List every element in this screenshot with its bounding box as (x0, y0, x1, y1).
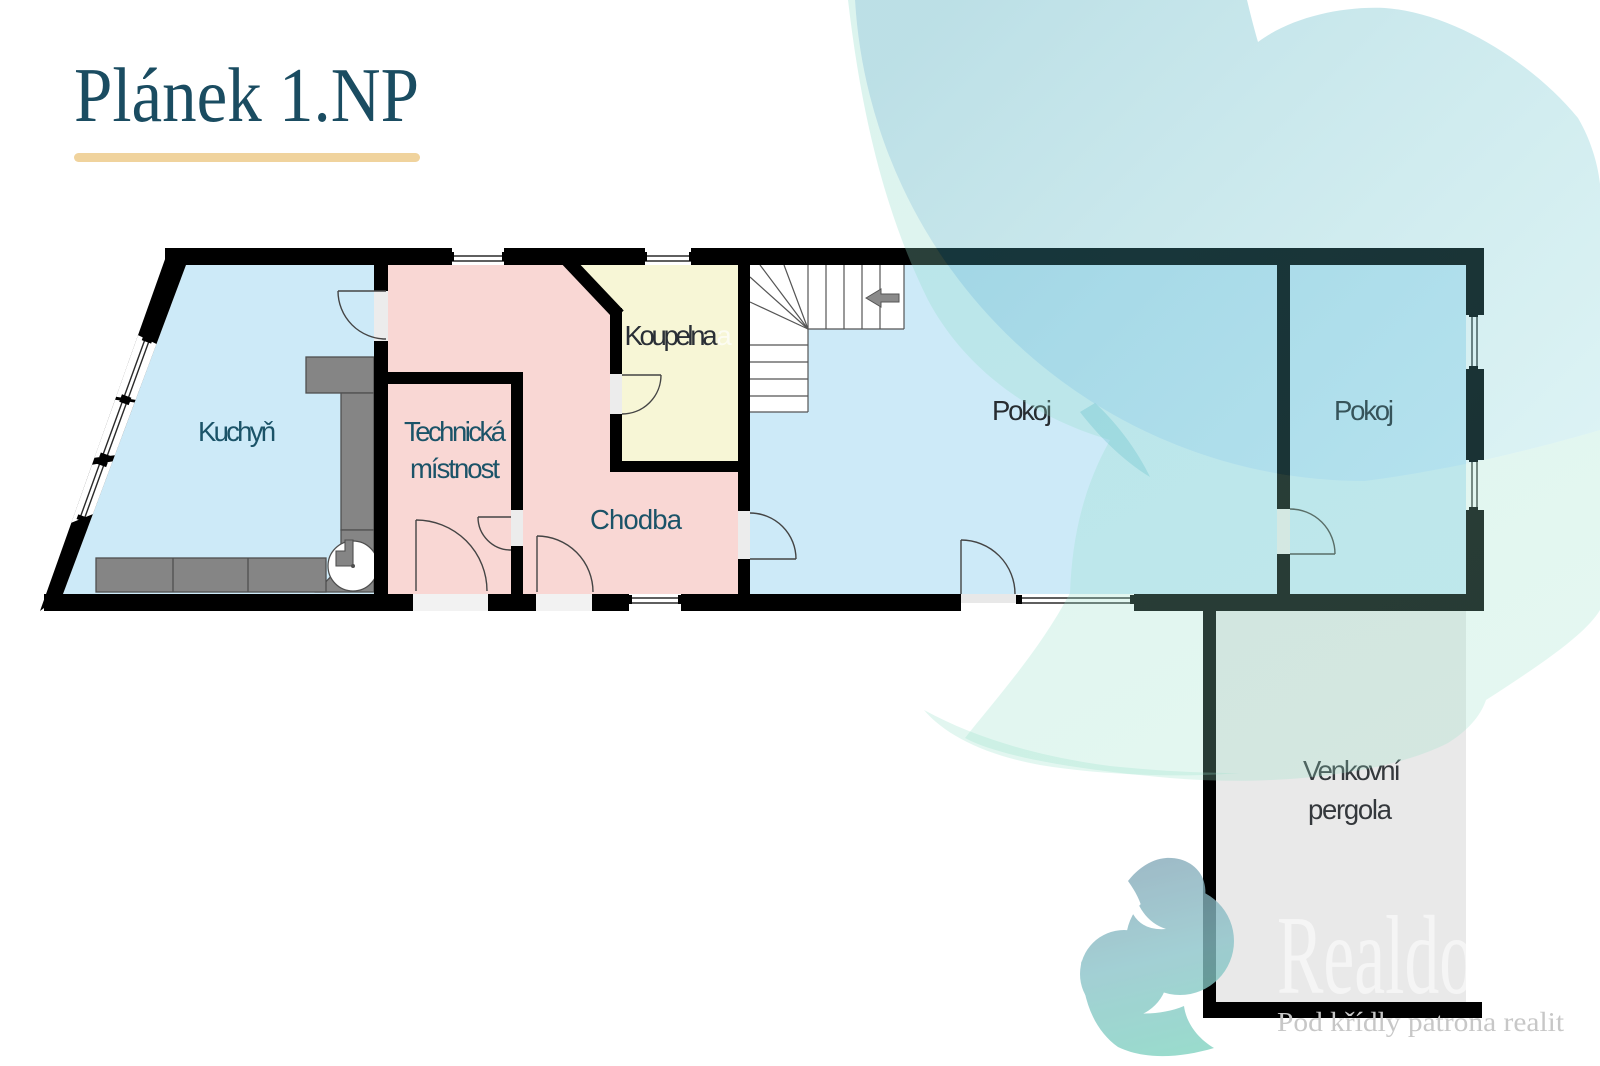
svg-text:Pod křídly patrona realit: Pod křídly patrona realit (1277, 1007, 1565, 1037)
svg-text:Realdome: Realdome (1277, 894, 1559, 1018)
svg-text:Technická: Technická (404, 416, 507, 447)
svg-text:Chodba: Chodba (590, 504, 683, 535)
svg-text:pergola: pergola (1308, 794, 1393, 825)
svg-text:místnost: místnost (410, 453, 500, 484)
svg-text:a: a (716, 320, 732, 351)
svg-text:Koupelna: Koupelna (625, 320, 719, 351)
svg-text:Kuchyň: Kuchyň (198, 416, 276, 447)
svg-text:Plánek 1.NP: Plánek 1.NP (74, 52, 419, 138)
